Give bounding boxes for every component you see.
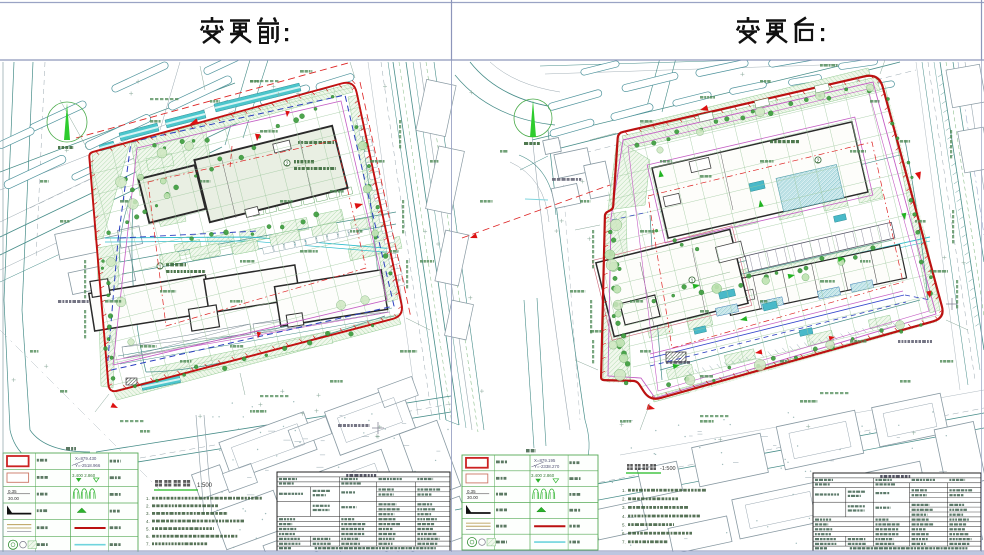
svg-text:3.400 2.860: 3.400 2.860 — [531, 473, 555, 478]
svg-text:-1:500: -1:500 — [660, 466, 676, 472]
svg-text:X=879.430: X=879.430 — [75, 456, 97, 461]
svg-text:5.: 5. — [146, 526, 150, 531]
svg-text:30.00: 30.00 — [467, 495, 479, 500]
svg-text:0.35: 0.35 — [8, 489, 17, 494]
svg-text:2.: 2. — [146, 504, 150, 509]
svg-text:6.: 6. — [622, 531, 626, 536]
svg-text:1:500: 1:500 — [197, 483, 213, 489]
svg-text:7.: 7. — [622, 540, 626, 545]
svg-text:1: 1 — [691, 278, 694, 284]
svg-text:30.00: 30.00 — [8, 496, 20, 501]
svg-text:6.: 6. — [146, 534, 150, 539]
svg-text:5.: 5. — [622, 522, 626, 527]
svg-text:X=879.195: X=879.195 — [534, 458, 556, 463]
svg-text:1.: 1. — [146, 496, 150, 501]
svg-text:4.: 4. — [622, 514, 626, 519]
svg-text:Y=-2518.966: Y=-2518.966 — [75, 463, 101, 468]
svg-text:2.: 2. — [622, 497, 626, 502]
svg-text:2: 2 — [286, 161, 289, 167]
svg-text:1.: 1. — [622, 488, 626, 493]
svg-text:0.35: 0.35 — [467, 489, 476, 494]
svg-text:4.: 4. — [146, 519, 150, 524]
svg-text:2: 2 — [817, 158, 820, 164]
svg-text:Y=-2338.270: Y=-2338.270 — [534, 464, 560, 469]
svg-text:3.400 2.860: 3.400 2.860 — [72, 473, 96, 478]
svg-text:7.: 7. — [146, 542, 150, 547]
svg-text:3.: 3. — [146, 511, 150, 516]
svg-text:3.: 3. — [622, 505, 626, 510]
